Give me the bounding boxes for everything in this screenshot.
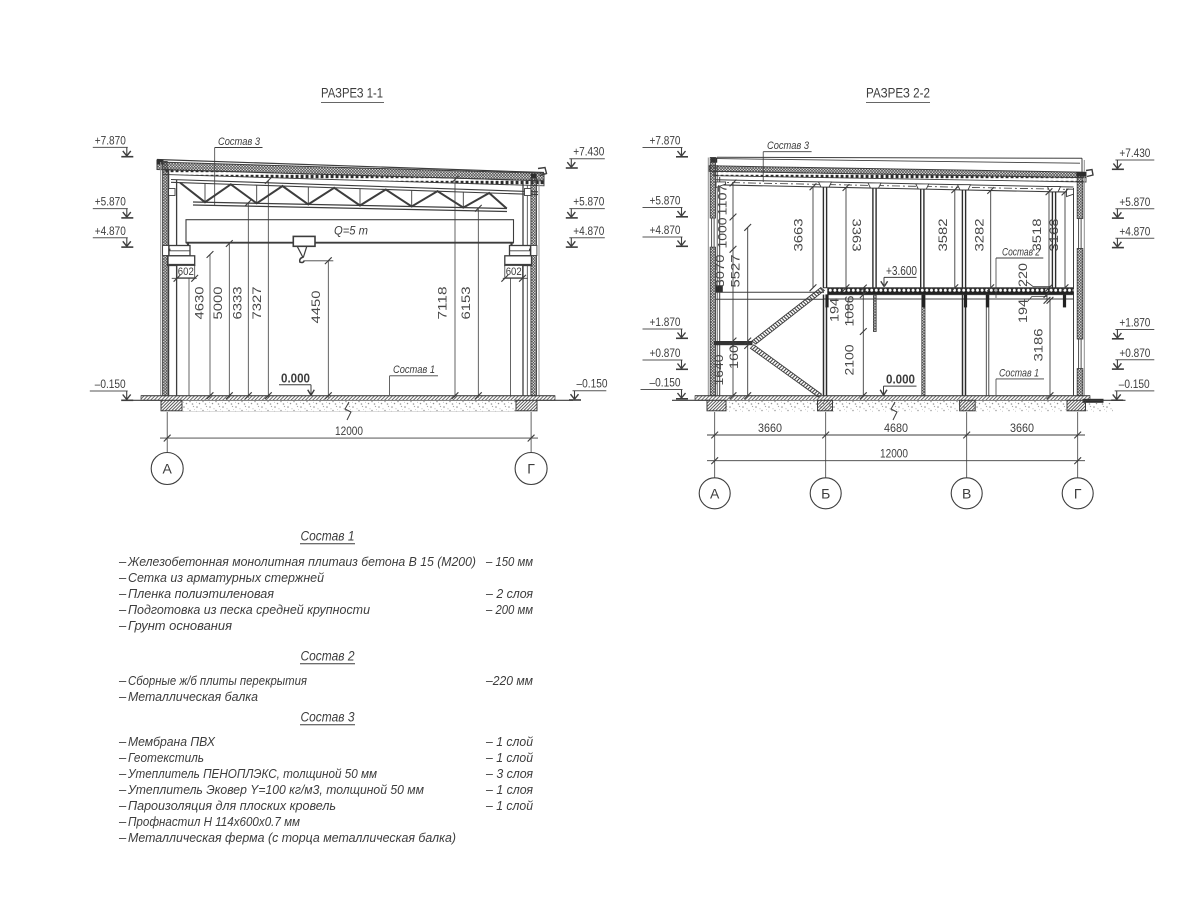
svg-text:3282: 3282 — [973, 218, 987, 251]
svg-text:Состав 2: Состав 2 — [1002, 246, 1040, 258]
svg-text:4680: 4680 — [884, 423, 908, 435]
svg-text:0.000: 0.000 — [281, 371, 310, 385]
svg-text:–0.150: –0.150 — [95, 379, 126, 391]
svg-text:3168: 3168 — [1047, 218, 1061, 251]
svg-text:–: – — [118, 673, 127, 688]
svg-text:– 200 мм: – 200 мм — [485, 602, 533, 617]
svg-text:+5.870: +5.870 — [95, 197, 126, 209]
svg-text:194: 194 — [828, 298, 842, 322]
svg-text:Железобетонная монолитная пли: Железобетонная монолитная плитаиз бетона… — [127, 554, 476, 569]
svg-text:–: – — [118, 830, 127, 845]
svg-text:3582: 3582 — [936, 218, 950, 251]
svg-text:+7.430: +7.430 — [1119, 148, 1150, 160]
svg-text:602: 602 — [178, 266, 194, 278]
svg-text:– 150 мм: – 150 мм — [485, 554, 533, 569]
svg-text:Б: Б — [821, 485, 830, 501]
svg-text:+5.870: +5.870 — [650, 196, 681, 208]
svg-text:–0.150: –0.150 — [650, 378, 681, 390]
svg-text:Пароизоляция для плоских крове: Пароизоляция для плоских кровель — [128, 798, 336, 813]
svg-text:1000: 1000 — [716, 217, 730, 248]
svg-text:3663: 3663 — [792, 218, 806, 251]
svg-text:–: – — [118, 570, 127, 585]
svg-text:–: – — [118, 618, 127, 633]
svg-text:Состав 3: Состав 3 — [218, 136, 261, 148]
svg-text:12000: 12000 — [880, 449, 908, 461]
svg-text:–0.150: –0.150 — [577, 379, 608, 391]
svg-text:Состав 1: Состав 1 — [999, 367, 1039, 379]
svg-text:Сетка из арматурных стержней: Сетка из арматурных стержней — [128, 570, 324, 585]
svg-text:0.000: 0.000 — [886, 373, 915, 387]
svg-text:Мембрана ПВХ: Мембрана ПВХ — [128, 734, 216, 749]
svg-text:+4.870: +4.870 — [650, 225, 681, 237]
svg-text:Сборные ж/б плиты перекрытия: Сборные ж/б плиты перекрытия — [128, 673, 307, 688]
svg-text:+7.870: +7.870 — [95, 135, 126, 147]
svg-text:602: 602 — [506, 266, 522, 278]
svg-text:– 3 слоя: – 3 слоя — [485, 766, 533, 781]
svg-text:Q=5 т: Q=5 т — [334, 226, 368, 238]
svg-text:РАЗРЕЗ 1-1: РАЗРЕЗ 1-1 — [321, 85, 383, 101]
svg-text:Состав 3: Состав 3 — [301, 710, 355, 725]
svg-text:–: – — [118, 689, 127, 704]
svg-text:РАЗРЕЗ 2-2: РАЗРЕЗ 2-2 — [866, 85, 930, 101]
svg-text:6333: 6333 — [231, 286, 245, 319]
svg-text:5527: 5527 — [729, 254, 743, 287]
svg-text:–: – — [118, 782, 127, 797]
svg-text:3660: 3660 — [1010, 423, 1034, 435]
svg-text:+4.870: +4.870 — [573, 226, 604, 238]
svg-text:3070: 3070 — [713, 254, 727, 287]
svg-text:Состав 1: Состав 1 — [393, 364, 435, 376]
svg-text:+1.870: +1.870 — [650, 317, 681, 329]
svg-text:1086: 1086 — [843, 295, 857, 326]
svg-text:+5.870: +5.870 — [1119, 197, 1150, 209]
svg-text:7118: 7118 — [436, 286, 450, 319]
svg-text:А: А — [163, 461, 173, 477]
svg-text:– 1 слой: – 1 слой — [485, 798, 533, 813]
svg-text:Г: Г — [1074, 485, 1082, 501]
svg-text:3363: 3363 — [850, 219, 864, 252]
svg-text:Геотекстиль: Геотекстиль — [128, 750, 204, 765]
svg-text:5000: 5000 — [211, 286, 225, 319]
svg-text:6153: 6153 — [459, 286, 473, 319]
svg-text:–: – — [118, 734, 127, 749]
svg-text:– 1 слой: – 1 слой — [485, 734, 533, 749]
svg-text:1107: 1107 — [716, 184, 730, 215]
svg-text:+1.870: +1.870 — [1119, 318, 1150, 330]
svg-text:+4.870: +4.870 — [95, 226, 126, 238]
svg-text:В: В — [962, 485, 971, 501]
svg-text:Состав 1: Состав 1 — [301, 529, 355, 544]
svg-text:–: – — [118, 586, 127, 601]
svg-text:+7.430: +7.430 — [573, 147, 604, 159]
svg-text:+0.870: +0.870 — [650, 348, 681, 360]
svg-text:3186: 3186 — [1032, 328, 1046, 361]
svg-text:12000: 12000 — [335, 426, 363, 438]
svg-text:160: 160 — [727, 345, 741, 369]
svg-text:– 1 слой: – 1 слой — [485, 750, 533, 765]
svg-text:Состав 2: Состав 2 — [301, 649, 355, 664]
svg-text:+5.870: +5.870 — [573, 197, 604, 209]
svg-text:+4.870: +4.870 — [1119, 226, 1150, 238]
svg-text:Металлическая балка: Металлическая балка — [128, 689, 258, 704]
svg-text:–: – — [118, 554, 127, 569]
svg-text:4630: 4630 — [192, 286, 206, 319]
svg-text:1640: 1640 — [712, 354, 726, 385]
svg-text:Г: Г — [527, 461, 535, 477]
svg-text:Утеплитель Эковер Y=100 кг/м3,: Утеплитель Эковер Y=100 кг/м3, толщиной … — [127, 782, 424, 797]
svg-text:– 1 слоя: – 1 слоя — [485, 782, 533, 797]
svg-text:–0.150: –0.150 — [1119, 379, 1150, 391]
svg-text:+0.870: +0.870 — [1119, 348, 1150, 360]
svg-text:–: – — [118, 814, 127, 829]
svg-text:220: 220 — [1016, 263, 1030, 287]
svg-text:– 2 слоя: – 2 слоя — [485, 586, 533, 601]
svg-text:Состав 3: Состав 3 — [767, 140, 810, 152]
svg-text:Профнастил Н 114х600х0.7 мм: Профнастил Н 114х600х0.7 мм — [128, 814, 300, 829]
svg-text:Утеплитель ПЕНОПЛЭКС, толщиной: Утеплитель ПЕНОПЛЭКС, толщиной 50 мм — [127, 766, 377, 781]
svg-text:А: А — [710, 485, 720, 501]
svg-text:+7.870: +7.870 — [650, 136, 681, 148]
svg-text:–: – — [118, 798, 127, 813]
svg-text:194: 194 — [1016, 299, 1030, 323]
svg-text:3660: 3660 — [758, 423, 782, 435]
svg-text:4450: 4450 — [309, 290, 323, 323]
svg-text:Металлическая ферма (с торца м: Металлическая ферма (с торца металлическ… — [128, 830, 456, 845]
svg-text:7327: 7327 — [250, 286, 264, 319]
svg-text:Подготовка из песка средней кр: Подготовка из песка средней крупности — [128, 602, 370, 617]
svg-text:2100: 2100 — [843, 344, 857, 375]
svg-text:–: – — [118, 602, 127, 617]
svg-text:Пленка полиэтиленовая: Пленка полиэтиленовая — [128, 586, 274, 601]
svg-text:+3.600: +3.600 — [886, 264, 917, 278]
svg-text:–220 мм: –220 мм — [485, 673, 533, 688]
svg-text:–: – — [118, 766, 127, 781]
svg-text:Грунт основания: Грунт основания — [128, 618, 232, 633]
svg-text:–: – — [118, 750, 127, 765]
